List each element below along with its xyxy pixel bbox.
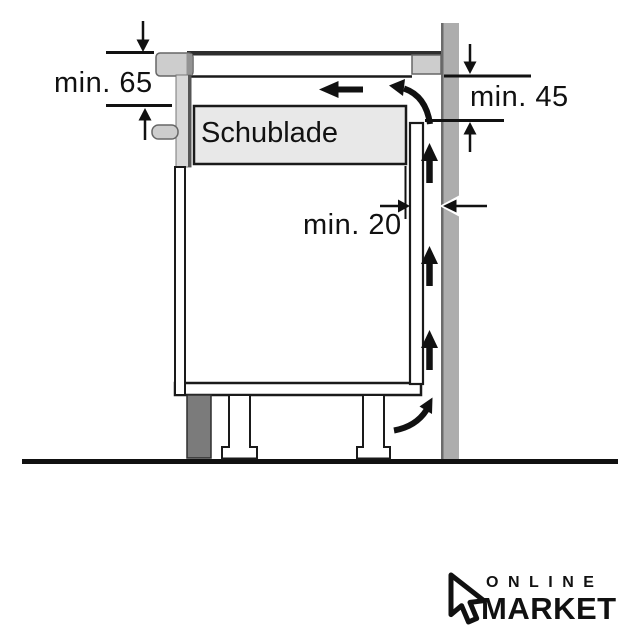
wall-edge bbox=[441, 23, 444, 460]
dim45-down-arrow-icon bbox=[464, 62, 477, 75]
diagram-canvas: min. 65 min. 45 min. 20 Schublade ONLINE… bbox=[0, 0, 644, 640]
plinth bbox=[187, 395, 211, 458]
airflow-curve-bottom bbox=[394, 410, 427, 431]
logo-text-market: MARKET bbox=[481, 591, 617, 627]
logo-text-online: ONLINE bbox=[486, 574, 603, 592]
dimension-label-min45: min. 45 bbox=[470, 82, 569, 112]
drawer-label: Schublade bbox=[201, 118, 338, 148]
drawer-front-edge bbox=[188, 75, 192, 167]
drawer-handle bbox=[152, 125, 178, 139]
cabinet-bottom-panel bbox=[175, 383, 421, 395]
worktop-right-block bbox=[412, 55, 441, 74]
online-market-logo: ONLINE MARKET bbox=[448, 570, 628, 630]
cabinet-back-panel bbox=[410, 123, 423, 384]
dim45-up-arrow-icon bbox=[464, 122, 477, 135]
hob-and-worktop bbox=[156, 51, 441, 77]
front-leg bbox=[222, 395, 257, 459]
dim65-down-arrow-icon bbox=[137, 40, 150, 53]
floor-line bbox=[22, 459, 618, 464]
back-leg bbox=[357, 395, 390, 459]
dimension-label-min65: min. 65 bbox=[54, 68, 153, 98]
cabinet-front-panel bbox=[175, 167, 185, 395]
dimension-label-min20: min. 20 bbox=[303, 210, 402, 240]
airflow-curve-top-arrow-icon bbox=[389, 79, 405, 96]
dim65-up-arrow-icon bbox=[139, 108, 152, 121]
wall-section bbox=[441, 23, 459, 460]
hob-top-plate bbox=[187, 51, 441, 56]
wall bbox=[441, 23, 459, 460]
worktop-left-block-shadow bbox=[187, 54, 193, 75]
airflow-left-arrow-icon bbox=[319, 81, 339, 98]
airflow-curve-top bbox=[404, 89, 430, 125]
